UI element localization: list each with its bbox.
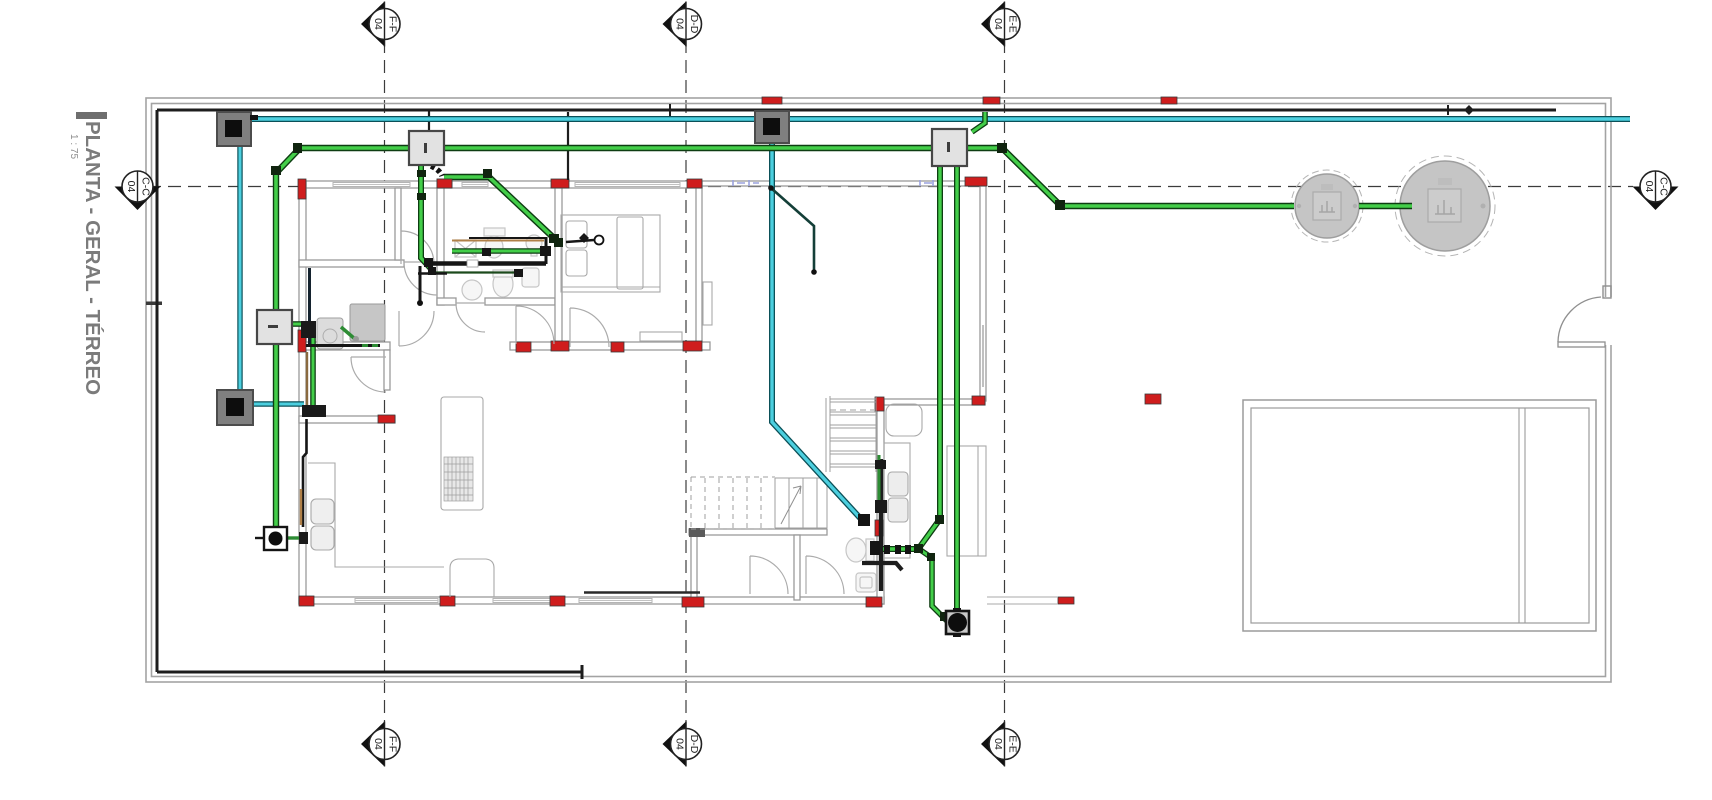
svg-text:D-D: D-D [688,735,700,754]
svg-text:04: 04 [992,738,1004,750]
svg-text:04: 04 [674,738,686,750]
svg-text:04: 04 [372,738,384,750]
svg-text:04: 04 [674,18,686,30]
svg-text:C-C: C-C [140,177,152,196]
svg-text:C-C: C-C [1658,177,1670,196]
svg-text:04: 04 [1643,181,1655,193]
svg-text:04: 04 [372,18,384,30]
svg-text:PLANTA - GERAL - TÉRREO: PLANTA - GERAL - TÉRREO [81,121,104,395]
svg-text:E-E: E-E [1007,15,1019,33]
svg-text:E-E: E-E [1007,735,1019,753]
svg-text:04: 04 [125,181,137,193]
svg-text:1 : 75: 1 : 75 [68,134,79,159]
svg-text:F-F: F-F [387,16,399,32]
svg-text:D-D: D-D [688,15,700,34]
svg-text:F-F: F-F [387,736,399,752]
svg-text:04: 04 [992,18,1004,30]
